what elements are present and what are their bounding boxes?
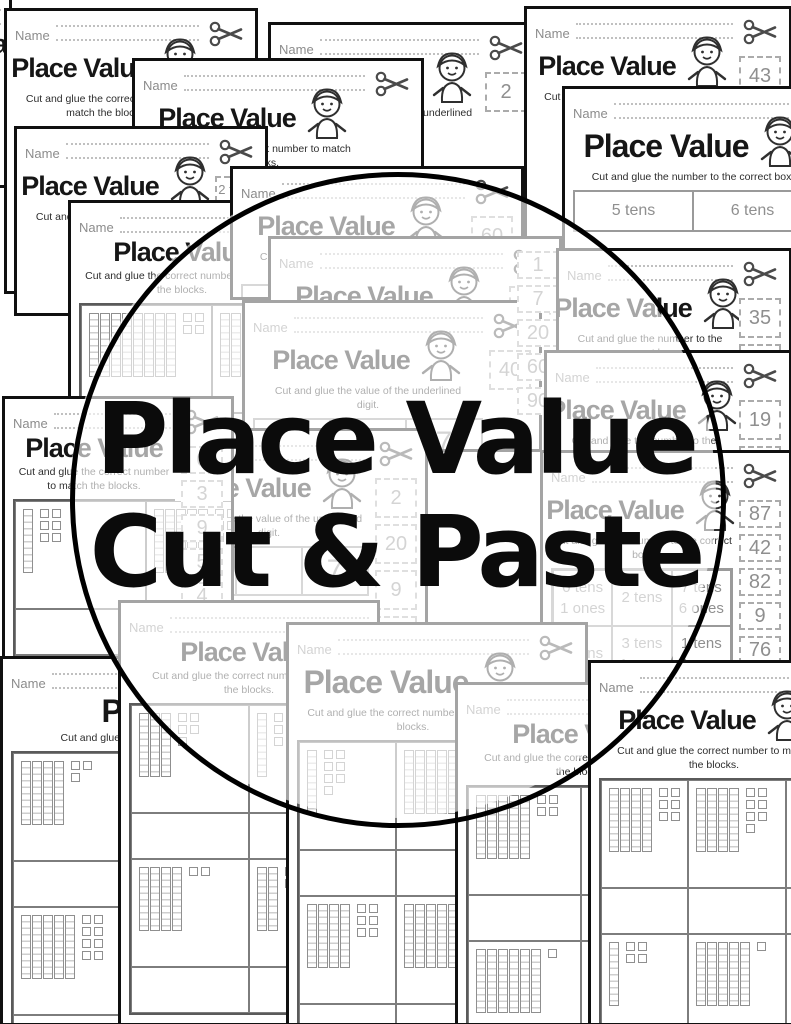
base-ten-blocks-cell xyxy=(688,780,786,888)
base-ten-blocks-cell xyxy=(299,896,396,1004)
tens-rod xyxy=(21,915,31,979)
answer-box xyxy=(131,813,249,859)
base-ten-blocks-cell xyxy=(786,934,791,1024)
worksheet-title-row: Place Value xyxy=(573,123,791,169)
tens-rod xyxy=(415,904,425,968)
tens-rod xyxy=(43,761,53,825)
tens-rod xyxy=(718,942,728,1006)
ones-cube xyxy=(537,807,546,816)
tens-rod xyxy=(729,942,739,1006)
worksheet-title-row: Place Value xyxy=(535,43,733,89)
ones-cube xyxy=(671,788,680,797)
ones-cube xyxy=(82,951,91,960)
ones-cube xyxy=(201,867,210,876)
tens-rod xyxy=(340,904,350,968)
answer-box xyxy=(786,888,791,934)
answer-box xyxy=(299,1004,396,1024)
tens-rod xyxy=(426,904,436,968)
tens-rods xyxy=(21,915,75,979)
tens-rod xyxy=(609,942,619,1006)
ones-cube xyxy=(71,773,80,782)
tens-rod xyxy=(498,949,508,1013)
tens-rod xyxy=(65,915,75,979)
tens-rod xyxy=(21,761,31,825)
scissors-icon xyxy=(488,32,524,64)
ones-cube xyxy=(357,904,366,913)
ones-cube xyxy=(537,795,546,804)
worksheet-subtitle: Cut and glue the number to the correct b… xyxy=(573,170,791,184)
worksheet-title-row: Place Value xyxy=(0,29,1,60)
tens-rod xyxy=(268,867,278,931)
ones-cubes xyxy=(659,788,680,821)
ones-cube xyxy=(83,761,92,770)
tens-rod xyxy=(54,761,64,825)
tens-cells-row: 5 tens6 tens xyxy=(573,190,791,232)
name-label: Name xyxy=(279,43,314,56)
tens-rod xyxy=(620,788,630,852)
tens-rods xyxy=(257,867,278,931)
ones-cube xyxy=(94,915,103,924)
worksheet-content xyxy=(599,778,791,1024)
strip-number-cell: 2 xyxy=(485,72,527,112)
ones-cube xyxy=(94,939,103,948)
ones-cube xyxy=(369,928,378,937)
ones-cube xyxy=(746,824,755,833)
tens-rod xyxy=(531,949,541,1013)
worksheet-main-column: Name Place Value Cut and glue the correc… xyxy=(0,2,1,178)
writing-line xyxy=(576,16,733,25)
worksheet-title: Place Value xyxy=(11,53,149,84)
ones-cube xyxy=(549,795,558,804)
kid-boy-five-icon xyxy=(304,87,350,141)
kid-boy-shrug-icon xyxy=(757,115,791,169)
tens-rod xyxy=(740,942,750,1006)
tens-rod xyxy=(509,949,519,1013)
ones-cube xyxy=(548,949,557,958)
name-label: Name xyxy=(573,107,608,120)
ones-cube xyxy=(357,916,366,925)
ones-cubes xyxy=(71,761,92,782)
name-label: Name xyxy=(25,147,60,160)
ones-cube xyxy=(82,927,91,936)
ones-cube xyxy=(82,939,91,948)
ones-cube xyxy=(549,807,558,816)
base-ten-blocks-cell xyxy=(131,859,249,967)
tens-rod xyxy=(520,795,530,859)
name-writing-lines xyxy=(0,2,1,26)
tens-rod xyxy=(476,949,486,1013)
ones-cube xyxy=(671,800,680,809)
tens-rod xyxy=(609,788,619,852)
answer-box xyxy=(688,888,786,934)
tens-rod xyxy=(729,788,739,852)
product-cover: Name Place Value Cut and glue the correc… xyxy=(0,0,791,1024)
answer-box xyxy=(299,850,396,896)
ones-cube xyxy=(757,942,766,951)
tens-rod xyxy=(718,788,728,852)
ones-cube xyxy=(626,954,635,963)
worksheet-title: Place Value xyxy=(538,51,676,82)
writing-line xyxy=(0,2,1,11)
tens-rod xyxy=(32,915,42,979)
cover-title: Place Value Cut & Paste xyxy=(0,383,791,609)
answer-box xyxy=(468,895,581,941)
ones-cube xyxy=(357,928,366,937)
ones-cube xyxy=(638,942,647,951)
tens-rod xyxy=(139,867,149,931)
tens-rod xyxy=(257,867,267,931)
tens-rod xyxy=(520,949,530,1013)
tens-rod xyxy=(54,915,64,979)
worksheet-content: 5 tens6 tens xyxy=(573,190,791,232)
tens-rod xyxy=(161,867,171,931)
writing-line xyxy=(0,16,1,25)
ones-cube xyxy=(94,951,103,960)
tens-rod xyxy=(139,713,149,777)
tens-cell: 6 tens xyxy=(694,192,791,230)
tens-rods xyxy=(307,904,350,968)
tens-rod xyxy=(404,904,414,968)
scissors-icon xyxy=(218,136,254,168)
tens-rod xyxy=(707,788,717,852)
answer-box xyxy=(601,888,688,934)
cover-title-line2: Cut & Paste xyxy=(0,496,791,609)
tens-rod xyxy=(307,904,317,968)
scissors-icon xyxy=(208,18,244,50)
ones-cubes xyxy=(189,867,210,876)
base-ten-blocks-cell xyxy=(601,934,688,1024)
ones-cube xyxy=(758,812,767,821)
ones-cube xyxy=(369,916,378,925)
writing-line xyxy=(56,18,199,27)
ones-cube xyxy=(758,788,767,797)
name-label: Name xyxy=(79,221,114,234)
writing-line xyxy=(614,96,791,105)
ones-cube xyxy=(189,867,198,876)
worksheet-title: Place Value xyxy=(21,171,159,202)
base-ten-blocks-cell xyxy=(786,780,791,888)
ones-cube xyxy=(94,927,103,936)
ones-cube xyxy=(758,800,767,809)
writing-line xyxy=(320,32,479,41)
writing-line xyxy=(184,68,365,77)
ones-cube xyxy=(659,788,668,797)
tens-cell: 5 tens xyxy=(575,192,694,230)
kid-boy-crayon-2-icon xyxy=(764,689,791,743)
ones-cube xyxy=(671,812,680,821)
ones-cubes xyxy=(548,949,569,958)
ones-cubes xyxy=(82,915,103,960)
tens-rod xyxy=(150,867,160,931)
base-ten-blocks-cell xyxy=(601,780,688,888)
tens-rods xyxy=(21,761,64,825)
ones-cubes xyxy=(357,904,378,937)
tens-rod xyxy=(329,904,339,968)
scissors-icon xyxy=(742,16,778,48)
tens-rod xyxy=(318,904,328,968)
worksheet-title: Place Value xyxy=(583,128,748,165)
base-ten-blocks-cell xyxy=(688,934,786,1024)
ones-cubes xyxy=(757,942,778,951)
tens-rod xyxy=(642,788,652,852)
ones-cubes xyxy=(537,795,558,816)
tens-rods xyxy=(696,788,739,852)
tens-rod xyxy=(707,942,717,1006)
ones-cube xyxy=(82,915,91,924)
ones-cube xyxy=(746,788,755,797)
scissors-icon xyxy=(374,68,410,100)
name-label: Name xyxy=(15,29,50,42)
writing-line xyxy=(66,136,209,145)
base-ten-blocks-grid xyxy=(599,778,791,1024)
answer-box xyxy=(131,967,249,1013)
ones-cube xyxy=(638,954,647,963)
name-label: Name xyxy=(535,27,570,40)
ones-cube xyxy=(659,800,668,809)
ones-cubes xyxy=(746,788,767,833)
ones-cubes xyxy=(626,942,647,963)
ones-cube xyxy=(746,812,755,821)
tens-rod xyxy=(437,904,447,968)
tens-rods xyxy=(609,788,652,852)
scissors-icon xyxy=(742,258,778,290)
tens-rods xyxy=(609,942,619,1006)
tens-rod xyxy=(43,915,53,979)
tens-rods xyxy=(139,867,182,931)
tens-rods xyxy=(696,942,750,1006)
kid-boy-crayon-icon xyxy=(429,51,475,105)
ones-cube xyxy=(71,761,80,770)
ones-cube xyxy=(746,800,755,809)
ones-cube xyxy=(369,904,378,913)
answer-strip: 2 xyxy=(485,72,527,112)
tens-rod xyxy=(631,788,641,852)
cover-title-line1: Place Value xyxy=(0,383,791,496)
tens-rod xyxy=(696,942,706,1006)
ones-cube xyxy=(659,812,668,821)
tens-rod xyxy=(32,761,42,825)
base-ten-blocks-cell xyxy=(468,941,581,1024)
tens-rod xyxy=(696,788,706,852)
strip-number-cell: 35 xyxy=(739,298,781,338)
tens-rods xyxy=(476,949,541,1013)
worksheet-subtitle: Cut and glue the correct number to match… xyxy=(0,61,1,146)
tens-rod xyxy=(172,867,182,931)
name-line: Name xyxy=(0,2,1,26)
kid-boy-pencil-icon xyxy=(684,35,730,89)
ones-cube xyxy=(626,942,635,951)
name-label: Name xyxy=(11,677,46,690)
tens-rod xyxy=(487,949,497,1013)
worksheet-subtitle: Cut and glue the correct number to match… xyxy=(614,744,791,772)
name-label: Name xyxy=(143,79,178,92)
